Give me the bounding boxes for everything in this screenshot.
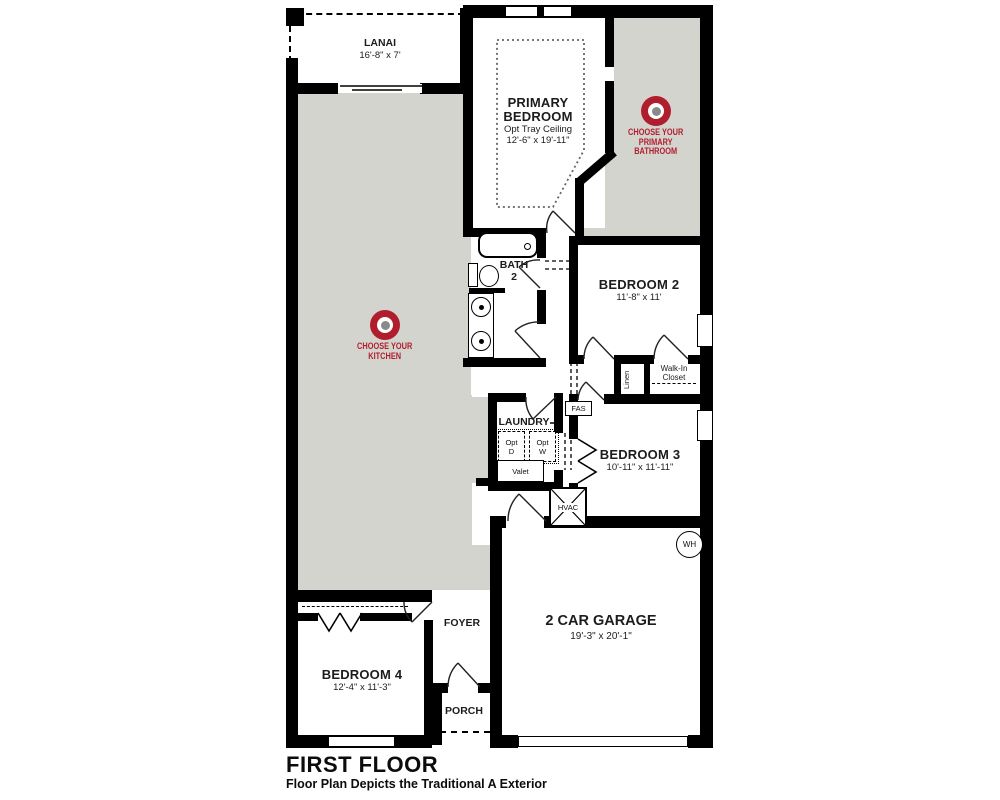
tub-drain [524, 243, 531, 250]
wall-segment [604, 394, 702, 404]
room-name: BATH [494, 260, 534, 272]
foyer-label: FOYER [434, 618, 490, 630]
garage-label: 2 CAR GARAGE 19'-3" x 20'-1" [502, 614, 700, 642]
lanai-dashed-edge [289, 26, 291, 62]
wall-segment [360, 613, 412, 621]
room-dims: 19'-3" x 20'-1" [502, 631, 700, 642]
wall-segment [286, 58, 298, 748]
lanai-dashed-edge [296, 13, 464, 15]
wall-segment [463, 15, 473, 237]
wall-segment [286, 8, 304, 26]
room-name: BEDROOM 3 [578, 448, 702, 462]
opt-dryer-label: D [509, 447, 514, 456]
valet-shelf: Valet [497, 460, 544, 482]
wall-segment [605, 15, 614, 67]
wall-segment [463, 358, 546, 367]
room-name: BEDROOM 4 [300, 668, 424, 682]
sliding-door [338, 84, 422, 93]
sink [471, 297, 491, 317]
laundry-label: LAUNDRY [494, 417, 554, 429]
wall-segment [688, 735, 713, 748]
closet-shelf-line [302, 606, 408, 607]
garage-door-opening [518, 736, 688, 747]
room-name: Closet [648, 374, 700, 383]
wall-segment [554, 393, 563, 402]
hotspot-label: BATHROOM [628, 147, 683, 157]
porch-edge-dashed [440, 731, 490, 733]
wall-segment [286, 590, 432, 602]
sink [471, 331, 491, 351]
lanai-label: LANAI 16'-8" x 7' [310, 38, 450, 61]
hvac-unit: HVAC [549, 487, 587, 527]
target-icon[interactable] [641, 96, 671, 126]
room-name: 2 [494, 272, 534, 284]
opt-washer: Opt W [529, 431, 556, 462]
wall-segment [569, 355, 584, 364]
linen-label: Linen [623, 363, 643, 397]
opt-washer-label: Opt [536, 438, 548, 447]
room-name: BEDROOM 2 [577, 278, 701, 292]
plan-title: FIRST FLOOR [286, 752, 438, 778]
hotspot-label: KITCHEN [357, 352, 412, 362]
wall-segment [537, 228, 546, 258]
bath2-label: BATH 2 [494, 260, 534, 283]
fas-box: FAS [565, 401, 592, 416]
walk-in-closet-label: Walk-In Closet [648, 365, 700, 383]
room-note: Opt Tray Ceiling [488, 125, 588, 135]
wall-segment [292, 83, 338, 94]
bedroom4-label: BEDROOM 4 12'-4" x 11'-3" [300, 668, 424, 694]
bedroom2-label: BEDROOM 2 11'-8" x 11' [577, 278, 701, 304]
wall-segment [420, 83, 466, 94]
porch-label: PORCH [436, 706, 492, 718]
room-dims: 12'-6" x 19'-11" [488, 136, 588, 146]
hvac-label: HVAC [557, 503, 579, 512]
target-icon[interactable] [370, 310, 400, 340]
wall-segment [478, 683, 502, 693]
room-porch [438, 693, 490, 743]
room-name: LANAI [310, 38, 450, 50]
bedroom3-label: BEDROOM 3 10'-11" x 11'-11" [578, 448, 702, 474]
window [697, 410, 713, 441]
primary-bedroom-label: PRIMARY BEDROOM Opt Tray Ceiling 12'-6" … [488, 96, 588, 146]
wall-segment [476, 478, 492, 486]
room-dims: 16'-8" x 7' [310, 51, 450, 61]
room-dims: 12'-4" x 11'-3" [300, 683, 424, 693]
floor-plan: Opt D Opt W Valet HVAC WH FAS [0, 0, 1000, 800]
room-dims: 11'-8" x 11' [577, 293, 701, 303]
bathtub [478, 232, 538, 258]
wall-segment [569, 236, 702, 245]
wall-segment [298, 613, 318, 621]
water-heater: WH [676, 531, 703, 558]
window [697, 314, 713, 347]
fas-label: FAS [571, 404, 585, 413]
opt-dryer: Opt D [498, 431, 525, 462]
window [505, 6, 538, 17]
room-name: 2 CAR GARAGE [502, 614, 700, 630]
wall-segment [463, 5, 712, 18]
window [328, 736, 395, 747]
room-name: PRIMARY BEDROOM [488, 96, 588, 125]
window [543, 6, 572, 17]
choose-primary-bathroom-hotspot[interactable]: CHOOSE YOUR PRIMARY BATHROOM [600, 96, 712, 157]
choose-kitchen-hotspot[interactable]: CHOOSE YOUR KITCHEN [327, 310, 443, 361]
water-heater-label: WH [683, 540, 696, 549]
wall-segment [537, 290, 546, 324]
plan-subtitle: Floor Plan Depicts the Traditional A Ext… [286, 777, 547, 791]
wall-segment [575, 178, 584, 238]
door-opening [605, 67, 614, 81]
opt-washer-label: W [539, 447, 546, 456]
door-opening [506, 516, 544, 528]
wall-segment [488, 393, 526, 402]
opt-dryer-label: Opt [505, 438, 517, 447]
bedroom4-closet [298, 602, 412, 613]
closet-shelf-line [652, 383, 696, 384]
valet-label: Valet [512, 467, 529, 476]
room-dims: 10'-11" x 11'-11" [578, 463, 702, 473]
toilet-tank [468, 263, 478, 287]
wall-segment [688, 355, 702, 364]
hallway [471, 363, 545, 395]
room-foyer [432, 590, 490, 685]
